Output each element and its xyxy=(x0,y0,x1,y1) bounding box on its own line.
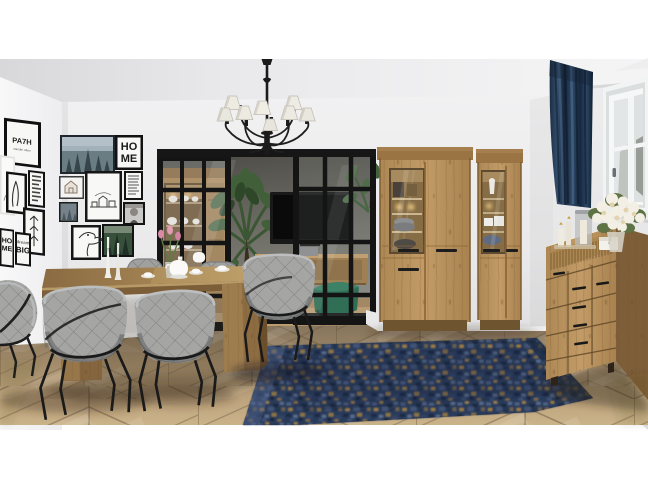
svg-text:BIG: BIG xyxy=(16,245,30,256)
svg-text:ME: ME xyxy=(121,153,138,165)
svg-text:HO: HO xyxy=(2,237,13,245)
svg-text:HO: HO xyxy=(121,141,138,153)
svg-text:ME: ME xyxy=(2,245,13,253)
